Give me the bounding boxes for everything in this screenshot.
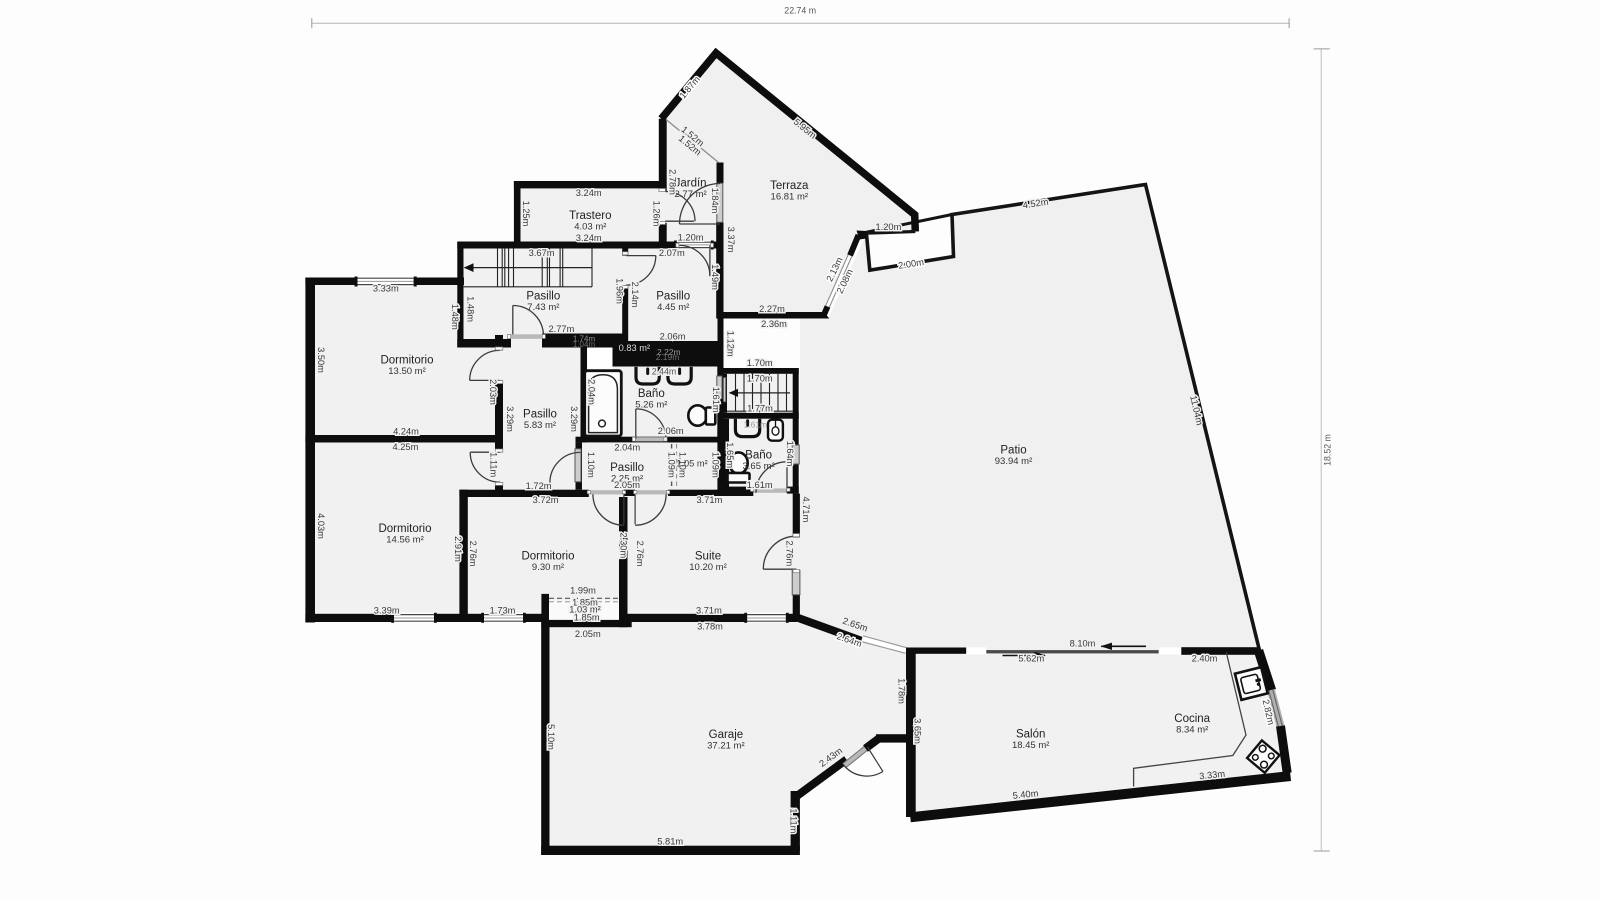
svg-text:Baño: Baño bbox=[745, 450, 772, 462]
svg-text:2.76m: 2.76m bbox=[635, 541, 645, 567]
svg-text:2.14m: 2.14m bbox=[630, 282, 640, 308]
svg-text:4.71m: 4.71m bbox=[801, 496, 811, 522]
svg-text:3.65 m²: 3.65 m² bbox=[742, 461, 774, 472]
svg-text:3.50m: 3.50m bbox=[316, 347, 326, 373]
svg-text:3.39m: 3.39m bbox=[374, 606, 400, 616]
svg-text:1.99m: 1.99m bbox=[570, 586, 596, 596]
svg-text:4.24m: 4.24m bbox=[393, 426, 419, 436]
svg-text:8.10m: 8.10m bbox=[1070, 638, 1096, 648]
svg-text:2.27m: 2.27m bbox=[759, 304, 785, 314]
svg-text:1.96m: 1.96m bbox=[615, 278, 625, 304]
svg-text:1.48m: 1.48m bbox=[466, 296, 476, 322]
svg-text:Baño: Baño bbox=[638, 388, 665, 400]
svg-text:2.19m: 2.19m bbox=[656, 352, 680, 362]
svg-text:Jardín: Jardín bbox=[675, 178, 707, 190]
svg-text:2.78m: 2.78m bbox=[668, 169, 678, 195]
svg-text:Pasillo: Pasillo bbox=[610, 462, 644, 474]
svg-text:4.03 m²: 4.03 m² bbox=[574, 222, 606, 233]
svg-text:5.81m: 5.81m bbox=[657, 837, 683, 847]
svg-text:3.71m: 3.71m bbox=[696, 606, 722, 616]
svg-text:9.30 m²: 9.30 m² bbox=[532, 562, 564, 573]
svg-text:1.61m: 1.61m bbox=[744, 419, 768, 429]
svg-text:3.29m: 3.29m bbox=[505, 406, 515, 432]
svg-text:1.61m: 1.61m bbox=[747, 480, 773, 490]
svg-text:2.76m: 2.76m bbox=[468, 541, 478, 567]
svg-text:18.45 m²: 18.45 m² bbox=[1012, 740, 1050, 751]
svg-text:18.52 m: 18.52 m bbox=[1323, 434, 1333, 466]
svg-text:4.25m: 4.25m bbox=[392, 442, 418, 452]
svg-text:13.50 m²: 13.50 m² bbox=[388, 366, 426, 377]
svg-text:2.05m: 2.05m bbox=[614, 480, 640, 490]
svg-text:5.83 m²: 5.83 m² bbox=[524, 420, 556, 431]
svg-text:2.30m: 2.30m bbox=[619, 532, 629, 558]
svg-text:10.20 m²: 10.20 m² bbox=[689, 562, 727, 573]
svg-text:1.11m: 1.11m bbox=[789, 808, 799, 833]
svg-text:2.77m: 2.77m bbox=[548, 324, 574, 334]
svg-text:3.33m: 3.33m bbox=[373, 284, 399, 294]
svg-text:1.11m: 1.11m bbox=[489, 452, 499, 477]
svg-text:5.26 m²: 5.26 m² bbox=[635, 400, 667, 411]
svg-text:2.91m: 2.91m bbox=[453, 536, 463, 562]
svg-text:1.65m: 1.65m bbox=[725, 442, 735, 468]
svg-text:3.78m: 3.78m bbox=[697, 621, 723, 631]
svg-text:3.24m: 3.24m bbox=[576, 233, 602, 243]
svg-text:1.72m: 1.72m bbox=[526, 481, 552, 491]
svg-text:1.70m: 1.70m bbox=[747, 374, 773, 384]
svg-text:Pasillo: Pasillo bbox=[656, 291, 690, 303]
svg-text:2.06m: 2.06m bbox=[660, 332, 686, 342]
svg-text:1.20m: 1.20m bbox=[678, 233, 704, 243]
svg-text:1.49m: 1.49m bbox=[710, 264, 720, 290]
svg-text:1.78m: 1.78m bbox=[897, 678, 907, 704]
svg-text:1.26m: 1.26m bbox=[652, 201, 662, 227]
svg-text:22.74 m: 22.74 m bbox=[784, 6, 816, 16]
svg-text:1.70m: 1.70m bbox=[747, 358, 773, 368]
svg-text:5.62m: 5.62m bbox=[1018, 654, 1044, 664]
svg-text:2.07m: 2.07m bbox=[659, 248, 685, 258]
svg-text:3.67m: 3.67m bbox=[529, 248, 555, 258]
svg-text:1.73m: 1.73m bbox=[490, 606, 516, 616]
svg-text:2.40m: 2.40m bbox=[1192, 654, 1218, 664]
svg-text:1.48m: 1.48m bbox=[450, 304, 460, 330]
svg-text:Patio: Patio bbox=[1000, 445, 1026, 457]
svg-text:0.83 m²: 0.83 m² bbox=[619, 343, 651, 353]
svg-text:1.10m: 1.10m bbox=[586, 452, 596, 478]
svg-text:14.56 m²: 14.56 m² bbox=[386, 535, 424, 546]
svg-text:2.06m: 2.06m bbox=[658, 426, 684, 436]
svg-text:1.05 m²: 1.05 m² bbox=[676, 459, 708, 469]
svg-text:7.43 m²: 7.43 m² bbox=[527, 302, 559, 313]
svg-text:2.04m: 2.04m bbox=[614, 442, 640, 452]
svg-text:3.24m: 3.24m bbox=[576, 188, 602, 198]
svg-text:Pasillo: Pasillo bbox=[526, 291, 560, 303]
svg-text:3.29m: 3.29m bbox=[569, 406, 579, 432]
svg-text:Dormitorio: Dormitorio bbox=[380, 355, 433, 367]
svg-text:1.09m: 1.09m bbox=[711, 452, 721, 478]
svg-text:Trastero: Trastero bbox=[569, 210, 611, 222]
svg-text:3.65m: 3.65m bbox=[912, 718, 922, 744]
svg-text:Terraza: Terraza bbox=[770, 180, 809, 192]
svg-text:3.72m: 3.72m bbox=[533, 495, 559, 505]
svg-text:8.34 m²: 8.34 m² bbox=[1176, 725, 1208, 736]
svg-text:1.20m: 1.20m bbox=[875, 222, 901, 232]
svg-text:2.05m: 2.05m bbox=[575, 629, 601, 639]
svg-text:1.64m: 1.64m bbox=[785, 441, 795, 467]
svg-text:Salón: Salón bbox=[1016, 728, 1045, 740]
svg-text:1.61m: 1.61m bbox=[711, 387, 721, 413]
svg-text:1.85m: 1.85m bbox=[574, 613, 600, 623]
svg-text:1.04m: 1.04m bbox=[573, 340, 596, 349]
svg-text:5.10m: 5.10m bbox=[546, 724, 556, 750]
svg-text:16.81 m²: 16.81 m² bbox=[771, 192, 809, 203]
svg-text:2.77 m²: 2.77 m² bbox=[674, 189, 706, 200]
svg-text:Garaje: Garaje bbox=[709, 729, 744, 741]
svg-text:3.71m: 3.71m bbox=[696, 495, 722, 505]
svg-text:2.36m: 2.36m bbox=[761, 319, 787, 329]
svg-text:Suite: Suite bbox=[695, 551, 721, 563]
svg-text:1.09m: 1.09m bbox=[667, 452, 677, 478]
svg-text:Dormitorio: Dormitorio bbox=[378, 523, 431, 535]
svg-text:1.12m: 1.12m bbox=[725, 331, 735, 357]
svg-text:1.25m: 1.25m bbox=[521, 201, 531, 227]
svg-text:1.77m: 1.77m bbox=[747, 404, 773, 414]
svg-text:1.84m: 1.84m bbox=[710, 188, 720, 214]
svg-text:37.21 m²: 37.21 m² bbox=[707, 741, 745, 752]
svg-text:Cocina: Cocina bbox=[1174, 713, 1210, 725]
svg-text:2.04m: 2.04m bbox=[587, 379, 597, 405]
svg-text:93.94 m²: 93.94 m² bbox=[995, 456, 1033, 467]
svg-text:Dormitorio: Dormitorio bbox=[521, 551, 574, 563]
svg-text:2.76m: 2.76m bbox=[785, 540, 795, 566]
svg-text:4.45 m²: 4.45 m² bbox=[657, 302, 689, 313]
svg-text:2.44m: 2.44m bbox=[652, 366, 676, 376]
svg-text:Pasillo: Pasillo bbox=[523, 409, 557, 421]
svg-text:2.03m: 2.03m bbox=[488, 379, 498, 405]
svg-text:4.03m: 4.03m bbox=[316, 513, 326, 539]
svg-text:3.37m: 3.37m bbox=[726, 227, 736, 253]
